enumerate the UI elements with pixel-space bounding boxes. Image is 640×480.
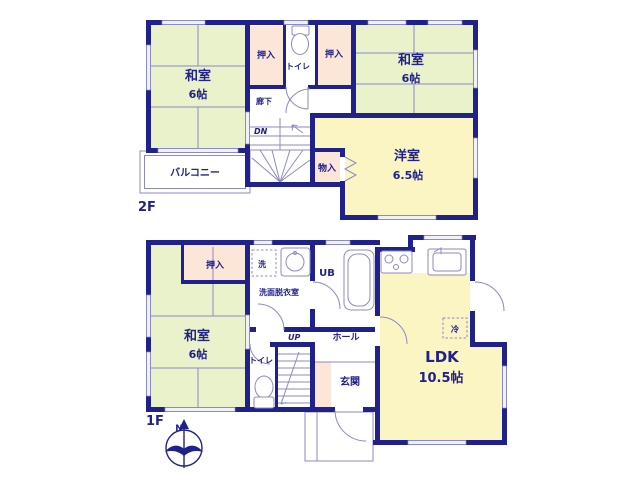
washitsu-sliding-door-2f <box>246 112 250 144</box>
entrance-porch <box>305 412 373 461</box>
toilet-door-opening-2f <box>286 85 308 89</box>
washroom-door-opening <box>256 327 284 332</box>
washitsu-sliding-door-1f <box>246 315 250 349</box>
label-washitsu-left-size-2f: 6帖 <box>189 87 208 101</box>
label-washroom: 洗面脱衣室 <box>259 287 299 297</box>
toilet-fixture-2f <box>292 26 310 55</box>
wash-basin <box>281 248 310 276</box>
label-washitsu-right-2f: 和室 <box>398 52 424 68</box>
label-storage-2f: 物入 <box>318 162 336 174</box>
ldk-side-door-arc <box>475 282 504 311</box>
label-entrance: 玄関 <box>340 375 360 388</box>
ldk-upper <box>380 273 470 345</box>
ldk-side-door-opening <box>470 281 475 311</box>
dn-arrow <box>292 125 303 133</box>
label-balcony: バルコニー <box>170 167 220 179</box>
label-washitsu-right-size-2f: 6帖 <box>402 71 421 85</box>
balcony-door <box>158 149 238 153</box>
label-toilet-1f: トイレ <box>249 356 273 365</box>
bathtub <box>344 250 374 310</box>
label-unit-bath: UB <box>319 268 335 279</box>
label-stairs-dn: DN <box>254 127 268 136</box>
label-washitsu-left-2f: 和室 <box>185 68 211 84</box>
label-washitsu-size-1f: 6帖 <box>189 347 208 361</box>
stove <box>381 251 412 273</box>
label-oshiire-1f: 押入 <box>206 259 224 271</box>
ub-door-opening <box>310 281 315 309</box>
label-yoshitsu-size-2f: 6.5帖 <box>393 168 424 182</box>
staircase-1f <box>278 352 312 404</box>
label-oshiire-b-2f: 押入 <box>325 48 343 60</box>
entrance-cabinet <box>313 362 331 407</box>
label-oshiire-a-2f: 押入 <box>257 49 275 61</box>
label-stairs-up: UP <box>288 333 300 342</box>
label-washitsu-1f: 和室 <box>184 328 210 344</box>
ub-door-arc <box>313 282 340 309</box>
floorplan-page: 和室 6帖 押入 トイレ 押入 和室 6帖 廊下 DN 物入 洋室 6.5帖 バ… <box>0 0 640 480</box>
toilet-fixture-1f <box>254 376 274 408</box>
label-ldk: LDK <box>425 348 460 366</box>
label-toilet-2f: トイレ <box>286 62 310 71</box>
kitchen-sink <box>428 248 466 275</box>
compass: N <box>165 419 203 468</box>
toilet-door-arc-2f <box>286 87 308 109</box>
ldk-door-opening <box>375 316 380 346</box>
washroom-door-arc <box>258 304 284 330</box>
label-compass-north: N <box>175 424 183 434</box>
label-hallway-2f: 廊下 <box>256 96 272 106</box>
label-floor-2f: 2F <box>138 200 156 215</box>
toilet-door-opening-1f <box>250 342 270 347</box>
label-hall: ホール <box>332 332 359 343</box>
floor-2f: 和室 6帖 押入 トイレ 押入 和室 6帖 廊下 DN 物入 洋室 6.5帖 バ… <box>138 20 478 220</box>
label-laundry: 洗 <box>258 259 266 269</box>
label-ldk-size: 10.5帖 <box>418 370 463 386</box>
label-floor-1f: 1F <box>146 414 164 429</box>
floor-1f: 押入 和室 6帖 洗 洗面脱衣室 UB ホール UP トイレ 玄関 LDK 10… <box>146 235 507 461</box>
yoshitsu-2f-upper <box>315 118 473 150</box>
floorplan-svg: 和室 6帖 押入 トイレ 押入 和室 6帖 廊下 DN 物入 洋室 6.5帖 バ… <box>0 0 640 480</box>
label-yoshitsu-2f: 洋室 <box>394 148 420 164</box>
label-fridge: 冷 <box>451 324 459 334</box>
